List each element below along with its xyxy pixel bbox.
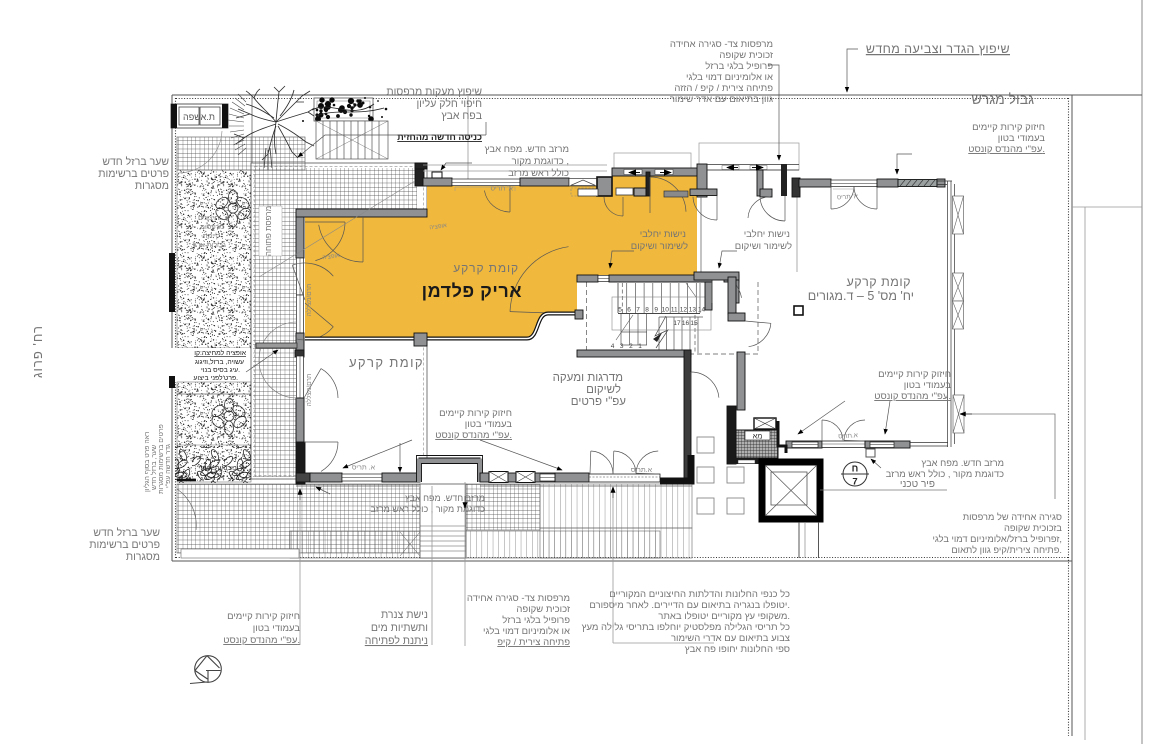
svg-text:16: 16 — [682, 320, 690, 327]
svg-text:עפ"י מהנדס קונסט.: עפ"י מהנדס קונסט. — [223, 635, 300, 646]
svg-text:נישת צנרת: נישת צנרת — [381, 609, 428, 621]
svg-text:א' תריס: א' תריס — [837, 193, 858, 201]
svg-text:יח' מס' 5 – ד.מגורים: יח' מס' 5 – ד.מגורים — [808, 289, 914, 303]
svg-text:בפח אבץ: בפח אבץ — [441, 110, 482, 122]
svg-text:קיימת: קיימת — [203, 233, 220, 240]
svg-text:8: 8 — [645, 307, 649, 314]
svg-text:פתיחה צירית / קיפ: פתיחה צירית / קיפ — [497, 637, 570, 648]
svg-text:מא: מא — [753, 432, 763, 441]
svg-text:גוון בתיאום עם אדר שימור: גוון בתיאום עם אדר שימור — [670, 94, 773, 105]
svg-text:בעמודי בטון: בעמודי בטון — [465, 419, 513, 430]
svg-text:כדוגמת מקור , כולל ראש מרזב: כדוגמת מקור , כולל ראש מרזב — [371, 504, 486, 514]
svg-text:עשויה, ברזל,וזיגוג: עשויה, ברזל,וזיגוג — [195, 358, 244, 366]
svg-text:ח: ח — [852, 464, 859, 475]
svg-text:או אלומיניום דמוי בלגי: או אלומיניום דמוי בלגי — [483, 625, 570, 637]
svg-text:10: 10 — [662, 307, 670, 314]
svg-text:כולל ראש מרזב: כולל ראש מרזב — [508, 167, 569, 179]
svg-text:א.תריס: א.תריס — [838, 432, 858, 440]
svg-text:פתיחה צירית/קיפ גוון לתאום.: פתיחה צירית/קיפ גוון לתאום. — [951, 544, 1062, 555]
svg-text:א.תריס: א.תריס — [631, 467, 653, 474]
svg-text:17: 17 — [673, 320, 681, 327]
svg-text:אופציה למחיצה:קו: אופציה למחיצה:קו — [194, 349, 246, 357]
svg-text:פרופיל בלגי ברזל: פרופיל בלגי ברזל — [502, 614, 570, 626]
svg-text:מרפסות צד- סגירה אחידה: מרפסות צד- סגירה אחידה — [670, 39, 773, 50]
svg-text:עפ"י מהנדס קונסט.: עפ"י מהנדס קונסט. — [968, 144, 1045, 155]
svg-text:9: 9 — [654, 307, 658, 314]
svg-text:13: 13 — [689, 307, 697, 314]
svg-text:שיפוץ מעקות מרפסות: שיפוץ מעקות מרפסות — [386, 86, 482, 98]
svg-text:חיזוק קירות קיימים: חיזוק קירות קיימים — [972, 122, 1045, 133]
svg-text:ראה פרט בסוף הגליון: ראה פרט בסוף הגליון — [143, 431, 151, 492]
svg-text:גבול מגרש: גבול מגרש — [972, 91, 1035, 107]
svg-text:כניסה חדשה מהחזית: כניסה חדשה מהחזית — [397, 132, 482, 142]
svg-text:שער ברזל חדש: שער ברזל חדש — [102, 156, 169, 168]
svg-text:עפ"י פרטים: עפ"י פרטים — [571, 396, 626, 408]
svg-text:בעמודי בטון: בעמודי בטון — [253, 623, 301, 634]
svg-text:נישות יחלבי: נישות יחלבי — [640, 228, 686, 240]
svg-text:בעמודי בטון: בעמודי בטון — [998, 133, 1046, 144]
svg-text:מדרגות ומעקה: מדרגות ומעקה — [553, 372, 623, 384]
svg-text:צבוע בתיאום עם אדרי השימור: צבוע בתיאום עם אדרי השימור — [671, 633, 790, 644]
svg-text:3: 3 — [620, 343, 624, 350]
svg-text:קומת קרקע: קומת קרקע — [349, 355, 424, 370]
svg-text:פיר טכני: פיר טכני — [900, 479, 935, 490]
svg-text:14: 14 — [698, 307, 706, 314]
svg-text:2: 2 — [629, 343, 633, 350]
svg-text:רח' פרוג: רח' פרוג — [30, 325, 45, 378]
svg-text:משקופי עץ מקוריים יטופלו באתר.: משקופי עץ מקוריים יטופלו באתר. — [658, 610, 790, 622]
svg-text:פרט'לפני ביצוע.: פרט'לפני ביצוע. — [193, 374, 238, 382]
svg-text:לשיקום: לשיקום — [586, 383, 621, 396]
svg-text:כדוגמת מקור , כולל ראש מרזב: כדוגמת מקור , כולל ראש מרזב — [886, 468, 1004, 479]
svg-text:בזכוכית שקופה: בזכוכית שקופה — [1004, 523, 1062, 533]
svg-text:5: 5 — [618, 307, 622, 314]
svg-text:סגירה אחידה של מרפסות: סגירה אחידה של מרפסות — [963, 511, 1062, 522]
svg-text:עפ"י מהנדס קונסט.: עפ"י מהנדס קונסט. — [435, 430, 512, 441]
svg-text:מסגרות: מסגרות — [126, 551, 160, 563]
svg-text:פרופיל בלגי ברזל: פרופיל בלגי ברזל — [705, 60, 773, 72]
svg-text:או אלומיניום דמוי בלגי: או אלומיניום דמוי בלגי — [686, 71, 773, 83]
svg-text:עפ"י מהנדס קונסט.: עפ"י מהנדס קונסט. — [874, 391, 951, 402]
svg-text:מרפסות: מרפסות — [200, 224, 224, 231]
svg-text:ניתנת לפתיחה: ניתנת לפתיחה — [365, 635, 428, 647]
svg-text:מרזב חדש. מפח אבץ: מרזב חדש. מפח אבץ — [921, 458, 1004, 468]
svg-text:מרזב חדש. מפח אבץ: מרזב חדש. מפח אבץ — [405, 493, 485, 503]
svg-text:אריק פלדמן: אריק פלדמן — [422, 281, 522, 301]
svg-text:גדר חדשה עפ"י: גדר חדשה עפ"י — [165, 444, 172, 488]
svg-text:זכוכית שקופה: זכוכית שקופה — [719, 50, 773, 61]
svg-text:ספי החלונות יחופו פח אבץ: ספי החלונות יחופו פח אבץ — [685, 643, 790, 655]
svg-text:חיזוק קירות קיימים: חיזוק קירות קיימים — [439, 408, 512, 419]
svg-text:יטופלו בנגריה בתיאום עם הדיירי: יטופלו בנגריה בתיאום עם הדיירים. לאחר מי… — [589, 599, 790, 611]
svg-text:פרטים ברשימות: פרטים ברשימות — [89, 539, 160, 551]
svg-text:תרם/מצללה: תרם/מצללה — [305, 284, 313, 317]
svg-text:שיפוץ הגדר וצביעה מחדש: שיפוץ הגדר וצביעה מחדש — [866, 42, 1010, 56]
svg-text:7: 7 — [636, 307, 640, 314]
svg-text:מרפסות צד- סגירה אחידה: מרפסות צד- סגירה אחידה — [467, 593, 570, 604]
svg-text:פרטים ברשימות מסגרות: פרטים ברשימות מסגרות — [158, 424, 165, 494]
svg-text:לשימור ושיקום: לשימור ושיקום — [631, 240, 688, 252]
svg-text:שער, ברזל חדש: שער, ברזל חדש — [150, 445, 158, 490]
svg-text:לשימור ושיקום: לשימור ושיקום — [735, 240, 792, 252]
svg-text:חיזוק קירות קיימים: חיזוק קירות קיימים — [878, 369, 951, 380]
svg-text:שער ברזל חדש: שער ברזל חדש — [93, 527, 160, 539]
svg-text:15: 15 — [690, 320, 698, 327]
svg-text:בעמודי בטון: בעמודי בטון — [904, 380, 952, 391]
svg-text:.גבולות אדר: .גבולות אדר — [191, 241, 226, 249]
svg-text:א' תריס: א' תריס — [490, 186, 513, 193]
svg-text:מסגרות: מסגרות — [135, 180, 169, 192]
svg-text:ותשתיות מים: ותשתיות מים — [371, 622, 428, 634]
svg-text:4: 4 — [611, 343, 615, 350]
svg-text:א. תריס: א. תריס — [352, 465, 376, 472]
svg-text:תרם/מצללה: תרם/מצללה — [305, 374, 313, 407]
svg-text:חיפוי חלק עליון: חיפוי חלק עליון — [416, 98, 482, 110]
svg-text:זפרופיל ברזל/אלומיניום דמוי בל: זפרופיל ברזל/אלומיניום דמוי בלגי, — [932, 533, 1062, 544]
svg-text:מרזב חדש. מפח אבץ: מרזב חדש. מפח אבץ — [485, 144, 569, 155]
svg-text:קומת קרקע: קומת קרקע — [453, 261, 519, 275]
svg-text:מרפסת פתוחה: מרפסת פתוחה — [264, 206, 273, 256]
svg-text:ביבואות.איגוד: ביבואות.איגוד — [199, 465, 237, 472]
svg-text:12: 12 — [680, 307, 688, 314]
svg-text:עיג בסיס בנוי.: עיג בסיס בנוי. — [201, 367, 240, 374]
svg-text:חיזוק קירות קיימים: חיזוק קירות קיימים — [227, 611, 300, 622]
svg-text:ת.אשפה: ת.אשפה — [183, 112, 215, 122]
svg-text:נישות יחלבי: נישות יחלבי — [744, 228, 790, 240]
svg-text:ג.. חיצונים: ג.. חיצונים — [198, 215, 228, 222]
svg-text:7: 7 — [852, 477, 857, 488]
svg-text:11: 11 — [671, 307, 678, 314]
svg-text:קומת קרקע: קומת קרקע — [846, 275, 911, 289]
svg-text:6: 6 — [627, 307, 631, 314]
svg-text:1: 1 — [638, 343, 642, 350]
svg-text:זכוכית שקופה: זכוכית שקופה — [516, 604, 570, 615]
svg-text:כדוגמת מקור ,: כדוגמת מקור , — [512, 156, 569, 167]
svg-text:פרטים ברשימות: פרטים ברשימות — [98, 168, 169, 180]
svg-text:פתיחה צירית / קיפ / הזזה: פתיחה צירית / קיפ / הזזה — [674, 83, 773, 94]
svg-text:כל כנפי החלונות והדלתות החיצונ: כל כנפי החלונות והדלתות החיצוניים המקורי… — [609, 588, 790, 600]
